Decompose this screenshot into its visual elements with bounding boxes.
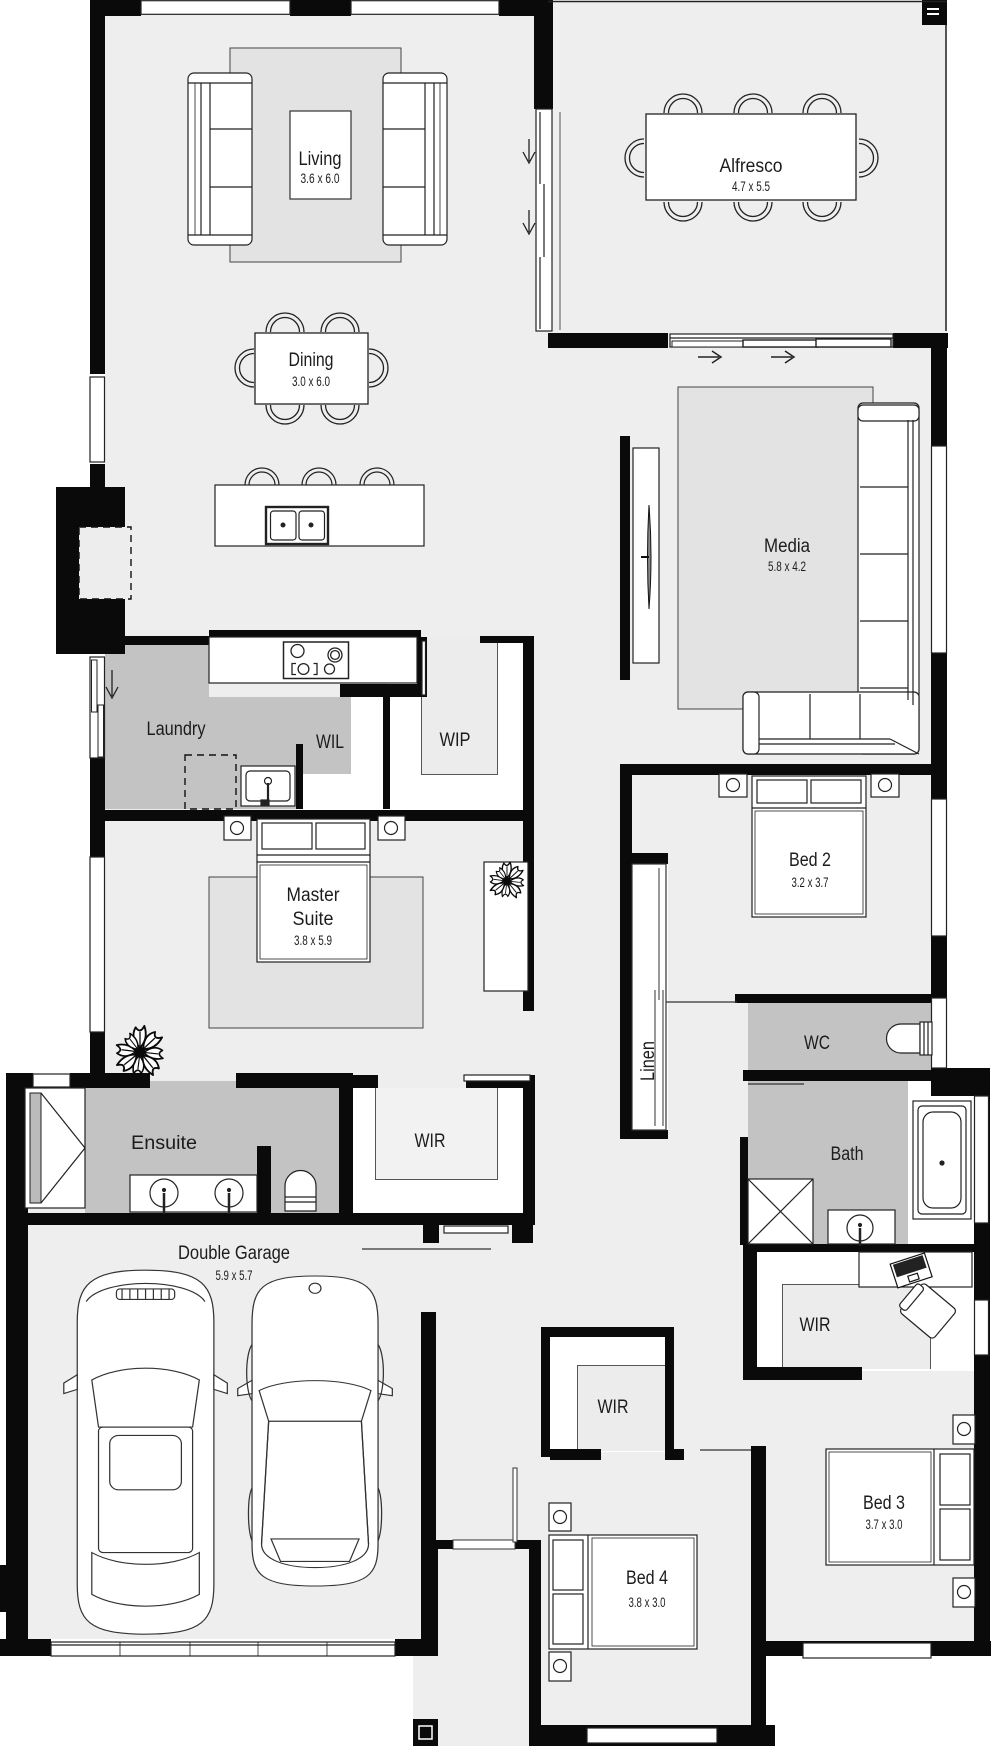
svg-text:3.8 x 5.9: 3.8 x 5.9 [294, 933, 332, 948]
svg-text:WIR: WIR [800, 1315, 831, 1336]
svg-text:Suite: Suite [293, 909, 334, 930]
svg-text:3.8 x 3.0: 3.8 x 3.0 [629, 1595, 666, 1610]
svg-text:WIR: WIR [415, 1131, 446, 1152]
svg-text:Double Garage: Double Garage [178, 1243, 290, 1264]
svg-text:WIR: WIR [598, 1397, 629, 1418]
svg-text:5.8 x 4.2: 5.8 x 4.2 [768, 559, 806, 574]
svg-text:Ensuite: Ensuite [131, 1133, 197, 1154]
svg-text:3.0 x 6.0: 3.0 x 6.0 [292, 374, 330, 389]
svg-text:WIL: WIL [316, 732, 344, 753]
svg-text:Bath: Bath [831, 1144, 864, 1165]
svg-text:3.2 x 3.7: 3.2 x 3.7 [792, 875, 829, 890]
svg-text:Laundry: Laundry [147, 719, 206, 740]
svg-text:Bed 2: Bed 2 [789, 850, 831, 871]
svg-text:5.9 x 5.7: 5.9 x 5.7 [216, 1268, 253, 1283]
svg-text:3.7 x 3.0: 3.7 x 3.0 [866, 1517, 903, 1532]
svg-text:Dining: Dining [289, 350, 334, 371]
svg-text:Bed 4: Bed 4 [626, 1568, 668, 1589]
svg-text:Alfresco: Alfresco [720, 156, 783, 177]
svg-text:Bed 3: Bed 3 [863, 1493, 905, 1514]
svg-text:4.7 x 5.5: 4.7 x 5.5 [732, 179, 770, 194]
svg-text:Master: Master [287, 885, 341, 906]
svg-text:Living: Living [299, 149, 342, 170]
svg-text:WIP: WIP [440, 730, 471, 751]
svg-text:Linen: Linen [638, 1041, 659, 1081]
svg-text:Media: Media [764, 536, 810, 557]
svg-text:WC: WC [804, 1033, 830, 1054]
svg-text:3.6 x 6.0: 3.6 x 6.0 [301, 171, 340, 186]
